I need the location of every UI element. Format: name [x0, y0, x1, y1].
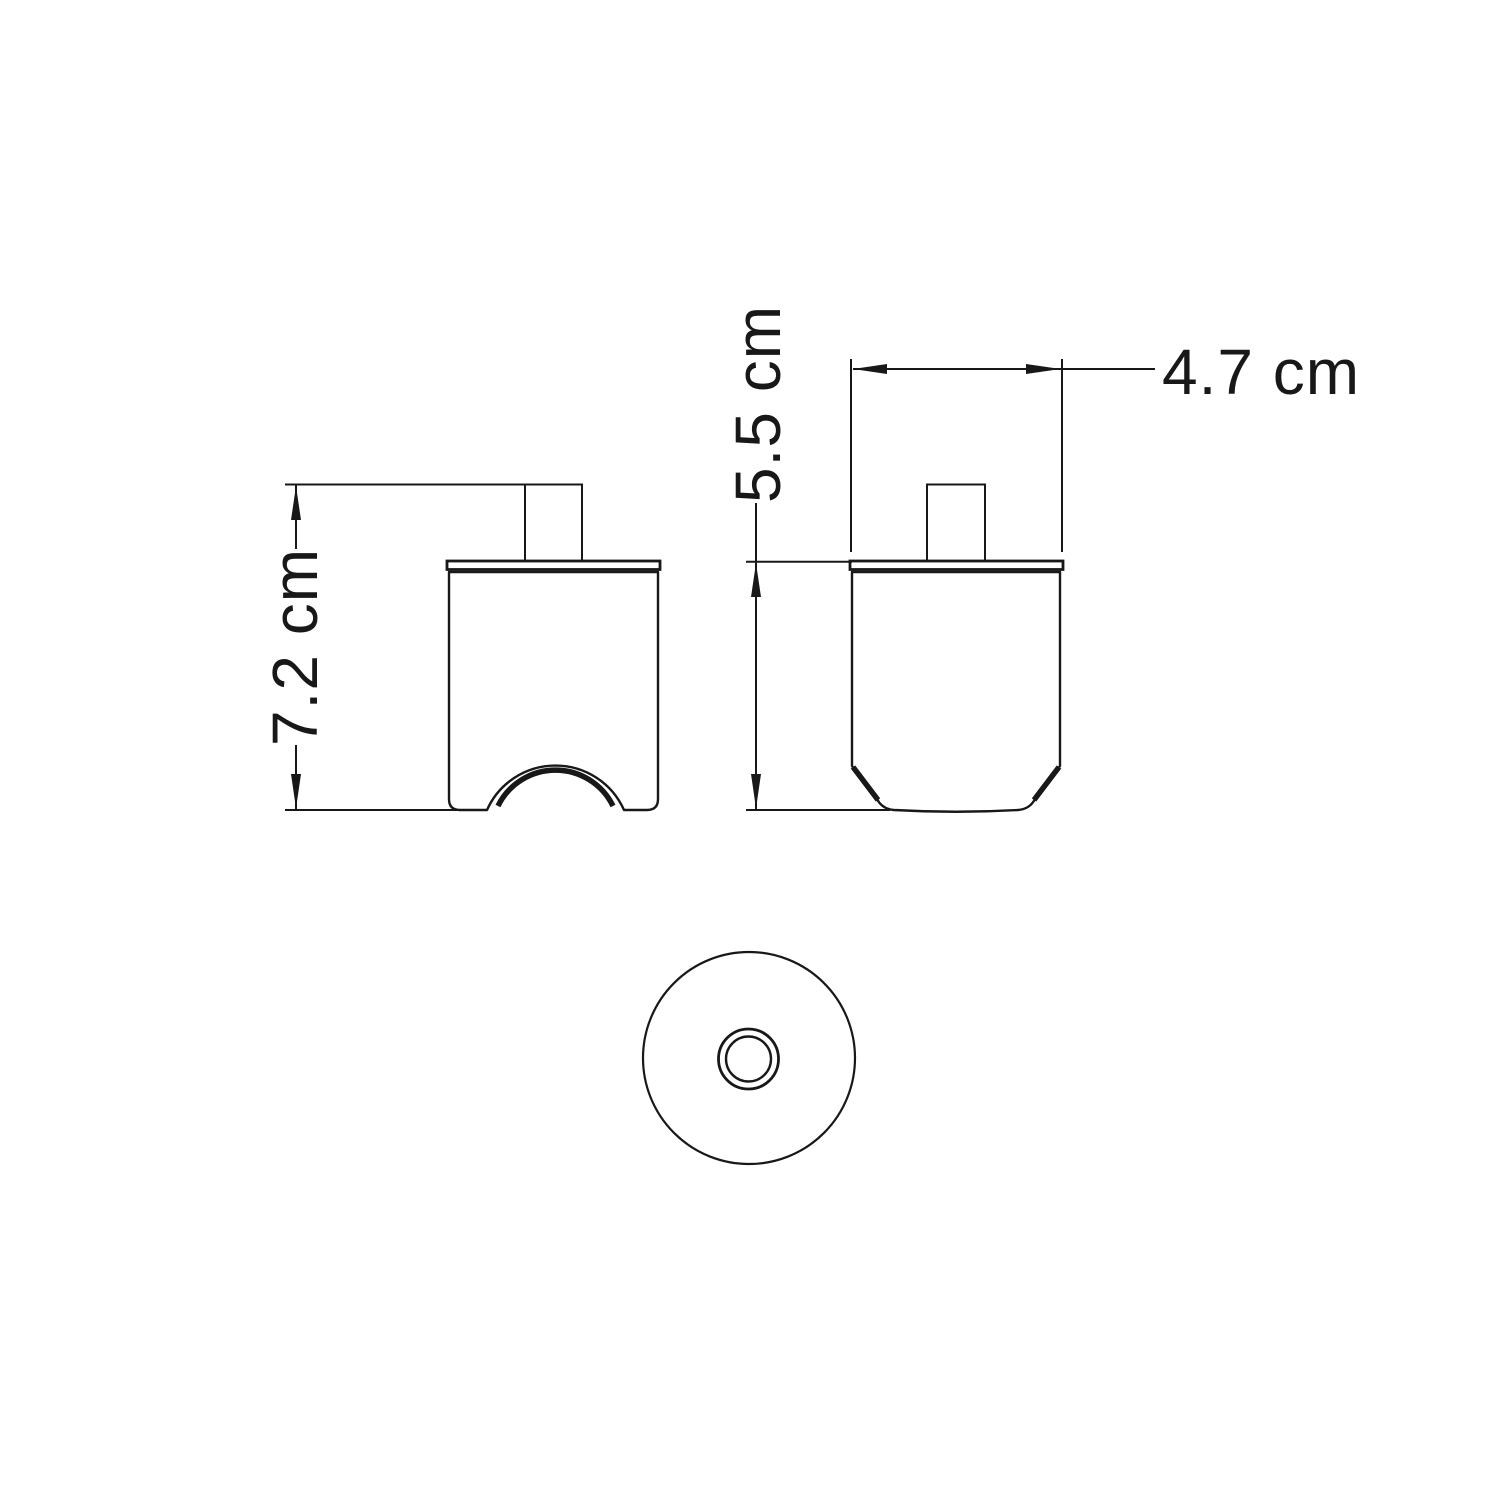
- dim-4-7-label: 4.7 cm: [1162, 336, 1360, 408]
- dim-7-2-label: 7.2 cm: [259, 548, 331, 746]
- side-view-cap: [850, 561, 1063, 570]
- arrow-up-icon: [291, 486, 301, 520]
- front-view-stem: [525, 485, 582, 562]
- front-view-body: [449, 572, 658, 810]
- dimension-drawing-svg: 7.2 cm 5.5 cm 4.7 cm: [0, 0, 1500, 1500]
- technical-drawing-canvas: 7.2 cm 5.5 cm 4.7 cm: [0, 0, 1500, 1500]
- side-view: [850, 485, 1063, 812]
- front-view-cap: [447, 561, 660, 570]
- side-view-body: [852, 572, 1060, 812]
- side-view-stem: [927, 485, 985, 562]
- arrow-down-icon: [291, 774, 301, 809]
- arrow-left-icon: [853, 364, 887, 374]
- arrow-right-icon: [1026, 364, 1061, 374]
- bottom-view-center-hole: [726, 1037, 771, 1082]
- dim-5-5-label: 5.5 cm: [722, 305, 794, 503]
- front-view: [447, 485, 660, 811]
- bottom-view: [643, 952, 855, 1164]
- arrow-up-icon: [751, 563, 761, 597]
- arrow-down-icon: [751, 774, 761, 809]
